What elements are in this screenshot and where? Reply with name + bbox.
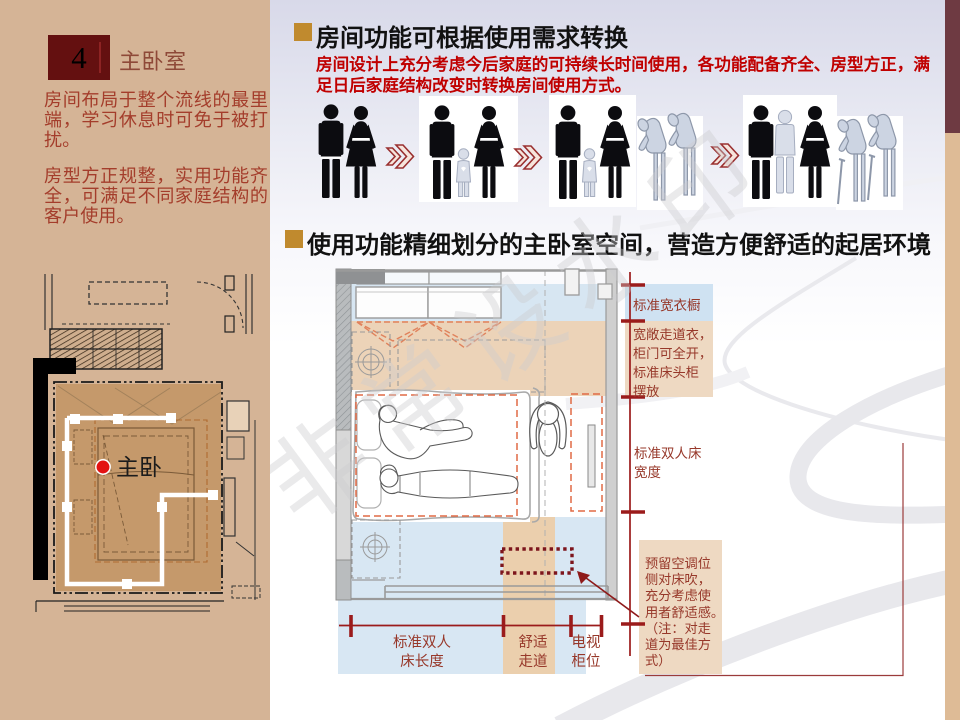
- svg-text:主卧: 主卧: [116, 454, 162, 480]
